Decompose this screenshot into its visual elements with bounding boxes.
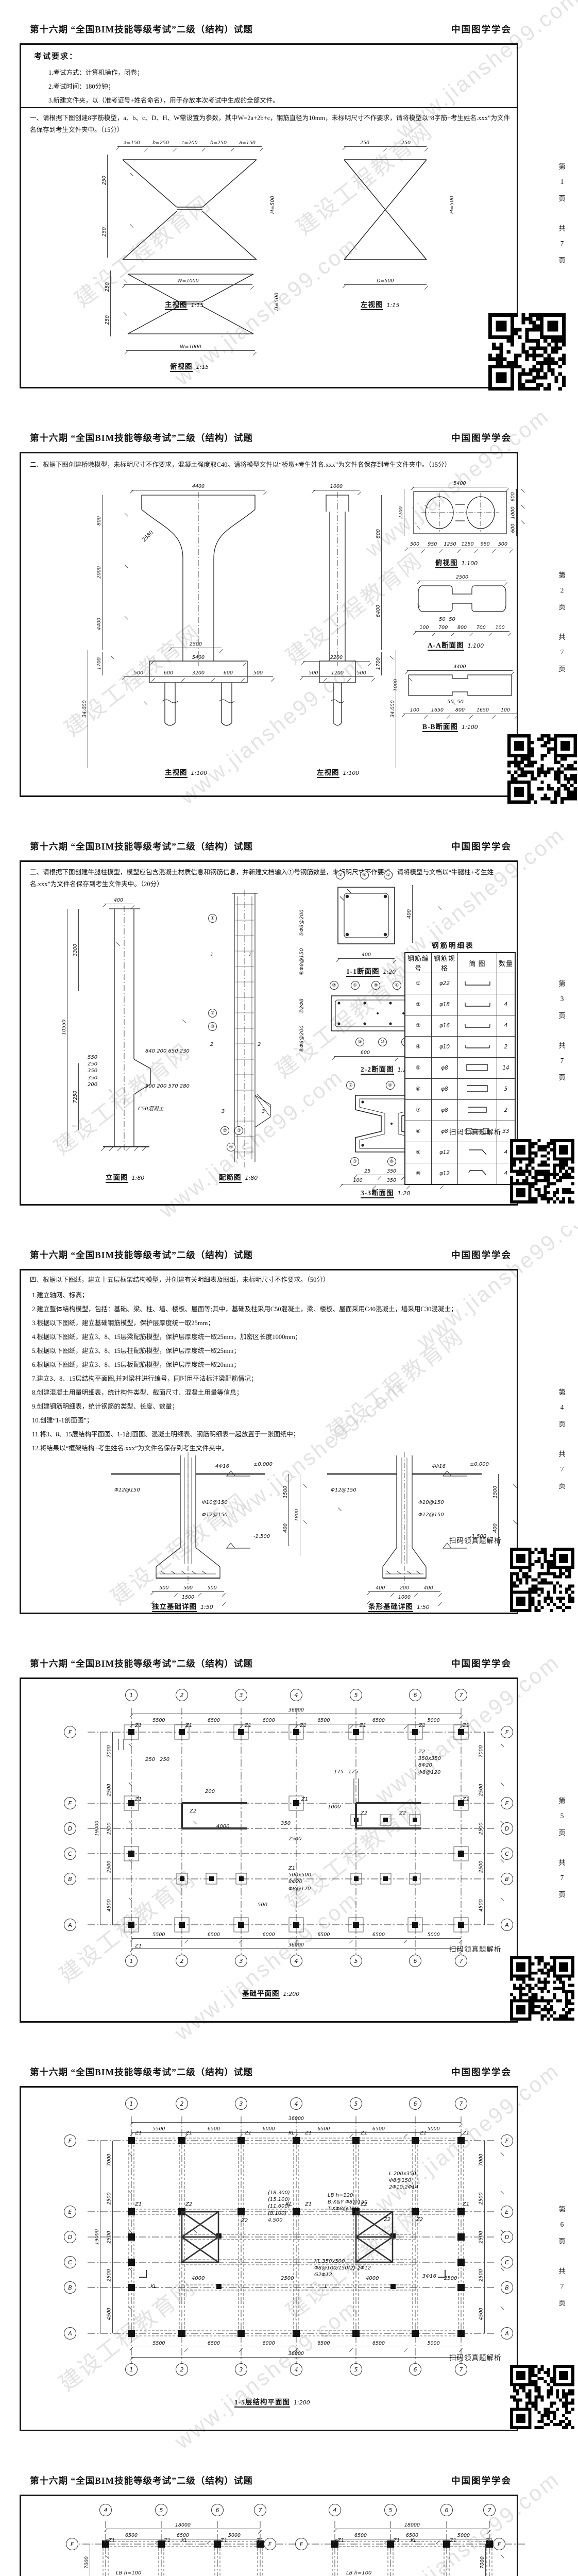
figure-section-bb (406, 672, 514, 698)
figure-caption: 1-1断面图1:20 (346, 965, 396, 976)
dim-depth: D=500 (274, 293, 280, 311)
list-item: 18000 (335, 2522, 489, 2529)
list-item: 共 (558, 2265, 566, 2276)
page-7: 建设工程教育网 www.jianshe99.com 建设工程教育网 www.ji… (0, 2451, 578, 2576)
dim-right-total: 1800 (294, 1474, 300, 1556)
task-item: 7.建立3、8、15层结构平面图,并对梁柱进行编号，同时用平法标注梁配筋情况； (32, 1372, 511, 1386)
qr-caption: 扫码领真题解析 (449, 2352, 502, 2362)
list-item: 1250 (459, 541, 477, 548)
list-item: 350 (88, 1067, 97, 1074)
list-item: 4500 (462, 1903, 501, 1909)
list-item: 400 (416, 1585, 440, 1591)
list-item: 1000 (368, 1595, 440, 1601)
column-label: Z1 (393, 2538, 400, 2544)
list-item: 500 (301, 670, 326, 676)
dim-chain-bottom: D=500 (344, 278, 427, 285)
column-label: Z1 (185, 2130, 192, 2136)
offset-dim: 250 (145, 1757, 155, 1762)
dim-chain-left: 250250 (104, 270, 111, 336)
callout-1: ① (208, 914, 217, 923)
page-total: 共7页 (556, 1040, 568, 1082)
figure-pier-front (111, 491, 286, 733)
list-item: 19000 (1, 1825, 193, 1832)
list-item: E (501, 2206, 513, 2218)
dim-top: 4400 (407, 664, 513, 671)
offset-dim: 1000 (328, 1804, 341, 1810)
org-name: 中国图学学会 (451, 23, 512, 36)
dim-right-chain: 1500400 (282, 1474, 289, 1546)
requirements-list: 1.考试方式：计算机操作，闭卷；2.考试时间：180分钟；3.新建文件夹，以（准… (48, 66, 279, 108)
dim-left-mid: 1700 (96, 652, 103, 675)
list-item: 500 (176, 1585, 200, 1591)
list-item: 950 (423, 541, 441, 548)
list-item: 400 (104, 897, 133, 904)
list-item: 1000 (313, 484, 360, 490)
list-item: 共 (558, 223, 566, 233)
org-name: 中国图学学会 (451, 2474, 512, 2487)
rebar-shape-open-stirrup (458, 1100, 497, 1121)
dim-chain-left: 250250 (101, 155, 108, 258)
list-item: 5 (350, 1689, 362, 1701)
column-label: Z1 (463, 2130, 469, 2136)
dim-bottom-chain: 5006003200600500 (124, 670, 273, 677)
offset-dim: 250 (160, 1757, 169, 1762)
offset-dim: 4000 (216, 1824, 229, 1829)
list-item: 500 (494, 541, 512, 548)
list-item: 2000 (73, 569, 125, 575)
list-item: 400 (380, 911, 438, 917)
column-label: Z1 (463, 1723, 469, 1728)
list-item: 4 (290, 2363, 302, 2376)
list-item: 8Φ20 (288, 1878, 311, 1885)
exam-title: 第十六期 “全国BIM技能等级考试”二级（结构）试题 (30, 1248, 253, 1261)
list-item: ② (330, 981, 338, 990)
list-item: 500 (243, 670, 273, 676)
list-item: F (264, 2538, 276, 2550)
list-item: F (295, 2538, 308, 2550)
list-item: ④ (393, 981, 401, 990)
list-item: (18.300) (268, 2190, 290, 2196)
list-item: 6500 (351, 1932, 406, 1938)
dim-right-chain: 70002500250025004500 (478, 1732, 485, 1925)
list-item: 19000 (1, 2234, 193, 2240)
list-item: 7 (455, 1955, 467, 1967)
requirements-title: 考试要求： (34, 50, 78, 61)
figure-caption: B-B断面图1:100 (422, 721, 478, 731)
figure-section-aa (417, 583, 507, 615)
list-item: A (64, 2327, 76, 2340)
rebar-label: Φ12@150 (114, 1487, 140, 1493)
list-item: 页 (558, 2297, 566, 2308)
column-label: Z2 (416, 2217, 423, 2223)
dim-right-chain: 8006400 (375, 495, 382, 650)
list-item: LB h=120 (328, 2192, 368, 2199)
dim-bottom-total: 36000 (131, 2351, 461, 2358)
list-item: 3200 (183, 670, 213, 676)
offset-dim: 200 (205, 1789, 215, 1794)
list-item: B (64, 1873, 76, 1885)
list-item: 1500 (477, 1489, 513, 1495)
list-item: 400 (477, 1525, 513, 1531)
offset-dim: 175 (334, 1769, 344, 1775)
list-item: F (64, 2134, 76, 2147)
column-label: Z1 (301, 1797, 308, 1802)
list-item: 600 (213, 670, 243, 676)
level-zero: ±0.000 (253, 1462, 273, 1467)
dim-footing: 5400 (152, 655, 245, 662)
list-item: 7000 (462, 2157, 501, 2163)
column-label: Z2 (384, 2217, 390, 2223)
list-item: G2Φ12 (314, 2272, 371, 2278)
list-item: c=200 (175, 140, 204, 146)
page-1: 建设工程教育网 www.jianshe99.com 建设工程教育网 www.ji… (0, 0, 578, 409)
dim-top: 4400 (131, 484, 265, 490)
figure-caption: 左视图1:100 (317, 767, 359, 777)
rebar-label: 4Φ16 (215, 1464, 229, 1469)
list-item: 2500 (462, 1825, 501, 1832)
page-3: 建设工程教育网 www.jianshe99.com 建设工程教育网 www.ji… (0, 817, 578, 1226)
list-item: 6500 (186, 1932, 242, 1938)
dim-bottom-chain: 550065006000650065005000 (131, 2341, 461, 2347)
list-item: 600 (154, 670, 183, 676)
list-item: 7 (560, 1057, 564, 1065)
page-number: 第1页 (556, 161, 568, 203)
figure-caption: 2-2断面图1:20 (361, 1063, 410, 1074)
list-item: 1000 (505, 510, 521, 516)
dim-h1: 3300 (72, 909, 79, 991)
dim-height: H=500 (270, 196, 276, 214)
dim-mids: 50 50 (447, 699, 464, 705)
column-label: Z1 (108, 2538, 115, 2544)
list-item: 250 (385, 140, 427, 146)
list-item: 34.000 (25, 706, 144, 712)
task-item: 8.创建混凝土用量明细表，统计构件类型、截面尺寸、混凝土用量等信息； (32, 1386, 511, 1400)
list-item: Φ8@120 (418, 1769, 441, 1776)
exam-title: 第十六期 “全国BIM技能等级考试”二级（结构）试题 (30, 2065, 253, 2078)
dim-height: H=500 (449, 196, 455, 214)
dim-right: 400 (406, 885, 413, 943)
dim-left-total: 19000 (94, 1732, 100, 1925)
list-item: 共 (558, 631, 566, 641)
offset-dim: 500 (258, 1902, 267, 1908)
list-item: B (64, 2281, 76, 2294)
exam-title: 第十六期 “全国BIM技能等级考试”二级（结构）试题 (30, 431, 253, 444)
list-item: 36000 (131, 2116, 461, 2122)
list-item: ⑨ (371, 981, 380, 990)
rebar-shape-bent-bar (458, 1142, 497, 1163)
list-item: 4 (99, 2504, 112, 2516)
beam-label: KL (181, 2538, 188, 2544)
figure-side-view (334, 150, 437, 269)
list-item: 2500 (462, 2195, 501, 2201)
section-mark-1: 1 (248, 952, 251, 958)
list-item: 5000 (438, 2533, 489, 2539)
dim-top-total: 36000 (131, 1707, 461, 1714)
col-header: 钢筋编号 (405, 953, 431, 973)
figure-strip-footing (319, 1452, 489, 1591)
list-item: E (64, 2206, 76, 2218)
list-item: 5 (384, 2504, 397, 2516)
qr-code (510, 1139, 574, 1204)
qr-caption: 扫码领真题解析 (449, 1943, 502, 1954)
list-item: 1 (125, 1689, 138, 1701)
list-item: Z1 (288, 1865, 311, 1872)
list-item: ⑤Φ8@200 (299, 909, 305, 936)
task-item: 11.将3、8、15层结构平面图、1-1剖面图、混凝土明细表、钢筋明细表一起放置… (32, 1428, 511, 1442)
dim-right-chain: 70002500250025004500 (478, 2141, 485, 2333)
list-item: 250 (78, 177, 130, 183)
figure-caption: 主视图1:15 (165, 299, 203, 309)
list-item: 1700 (87, 660, 111, 667)
rebar-shape-stirrup (458, 1058, 497, 1079)
list-item: 7 (455, 1689, 467, 1701)
list-item: 800 (339, 531, 417, 537)
floor-plan-drawing (77, 2107, 505, 2375)
list-item: E (501, 1797, 513, 1809)
list-item: 2500 (418, 574, 506, 581)
list-item: 100 (403, 707, 426, 714)
question-4: 四、根据以下图纸，建立十五层框架结构模型，并创建有关明细表及图纸，未标明尺寸不作… (30, 1274, 514, 1286)
bend-dims-10: 500 200 570 280 (145, 1083, 190, 1090)
list-item: F (501, 1726, 513, 1738)
list-item: 2500 (462, 1787, 501, 1793)
dim-top-total: 18000 (106, 2522, 260, 2529)
list-item: 页 (558, 663, 566, 673)
list-item: 5 (350, 2097, 362, 2110)
list-item: 共 (558, 1448, 566, 1459)
dim-top: 2500 (418, 574, 506, 581)
beam-label: KL (288, 2130, 295, 2136)
dim-cap: 2500 (170, 641, 222, 648)
list-item: 5000 (209, 2533, 260, 2539)
slab-note: LB h=120B:X&Y Φ8@150T:XΦ8@200 (328, 2192, 368, 2213)
col-header: 简 图 (458, 953, 497, 973)
column-label: Z1 (300, 1723, 307, 1728)
callout-2-3: ②③ (220, 1126, 243, 1135)
list-item: F (64, 1726, 76, 1738)
rebar-shape-open-stirrup (458, 1079, 497, 1100)
rebar-extra: 3Φ16 (422, 2274, 436, 2279)
exam-title: 第十六期 “全国BIM技能等级考试”二级（结构）试题 (30, 2474, 253, 2487)
list-item: 5500 (131, 2341, 186, 2347)
column-label: Z2 (241, 2218, 248, 2224)
dim-left: 1000 (393, 672, 399, 698)
list-item: L 200x350 (389, 2171, 418, 2177)
column-label: Z1 (135, 2130, 142, 2136)
list-item: 800 (453, 625, 472, 631)
list-item: C (501, 2256, 513, 2268)
list-item: 800 (449, 707, 471, 714)
list-item: b=250 (204, 140, 233, 146)
rebar-label: 4Φ16 (432, 1464, 446, 1469)
list-item: 5000 (406, 2341, 461, 2347)
page-number: 第5页 (556, 1795, 568, 1837)
column-label: Z2 (399, 1810, 406, 1816)
qr-code (510, 1956, 574, 2021)
section11-callouts: ①⑤① (336, 871, 393, 879)
column-label: Z2 (185, 2201, 192, 2207)
org-name: 中国图学学会 (451, 2065, 512, 2078)
list-item: (15.100) (268, 2196, 290, 2203)
list-item: 10550 (0, 1024, 182, 1030)
task-item: 12.将结果以“框架结构+考生姓名.xxx”为文件名保存到考生文件夹中。 (32, 1442, 511, 1455)
list-item: 4 (290, 1689, 302, 1701)
list-item: 2500 (462, 1864, 501, 1870)
list-item: KL 350x500 (314, 2258, 371, 2265)
figure-caption: 主视图1:100 (165, 767, 207, 777)
dim-right-chain: 6001000600 (510, 489, 517, 536)
list-item: 7 (560, 2282, 564, 2291)
list-item: 页 (558, 1072, 566, 1082)
rebar-notes: ⑤Φ8@200⑥Φ8@150⑦2Φ8⑧Φ8@200 (288, 920, 315, 1042)
table-title: 钢筋明细表 (432, 940, 474, 950)
column-label: Z1 (185, 1723, 192, 1728)
list-item: ③ (350, 1157, 359, 1166)
list-item: 7 (455, 2097, 467, 2110)
figure-caption: 左视图1:15 (361, 299, 399, 309)
list-item: 700 (471, 625, 490, 631)
annotation-z1: Z1500x5008Φ20Φ8@120 (288, 1865, 311, 1892)
list-item: 6500 (186, 2126, 242, 2132)
page-5: 建设工程教育网 www.jianshe99.com 建设工程教育网 www.ji… (0, 1634, 578, 2043)
level-zero: ±0.000 (470, 1462, 489, 1467)
list-item: ⑧ (387, 1157, 396, 1166)
list-item: 6500 (186, 2341, 242, 2347)
list-item: 1 (125, 2363, 138, 2376)
list-item: 页 (558, 255, 566, 265)
table-row: ②φ184 (405, 994, 515, 1015)
callout-9: ⑨ (208, 1009, 217, 1018)
list-item: F (493, 2538, 505, 2550)
dim-width: 2200 (303, 655, 370, 662)
list-item: ② (346, 1081, 355, 1090)
figure-caption: 3-3断面图1:20 (361, 1187, 410, 1197)
list-item: 600 (505, 526, 521, 532)
list-item: 1800 (256, 1512, 338, 1518)
column-label: Z1 (419, 1723, 426, 1728)
dim-top: 5400 (412, 481, 507, 487)
beam-kl-note: KL 350x500Φ8@100/150(2) 2Φ12G2Φ12 (314, 2258, 371, 2279)
dim-left-chain: 80020004400 (96, 495, 103, 650)
list-item: 7000 (462, 1748, 501, 1754)
qr-code (510, 1548, 574, 1612)
list-item: 2Φ10;2Φ14 (389, 2184, 418, 2191)
rebar-label: Φ10@150 (418, 1500, 444, 1505)
list-item: F (501, 2134, 513, 2147)
offset-dim: 175 (348, 1769, 358, 1775)
list-item: 5000 (406, 1718, 461, 1724)
list-item: 5500 (131, 1932, 186, 1938)
list-item: 200 (393, 1585, 417, 1591)
core-dim: 4000 (366, 2276, 379, 2281)
callout-4: ④ (227, 1143, 236, 1151)
figure-caption: 立面图1:80 (106, 1172, 144, 1182)
column-label: Z1 (420, 2130, 427, 2136)
figure-front-view (112, 150, 267, 269)
page-total: 共7页 (556, 631, 568, 673)
list-item: 350x350 (418, 1755, 441, 1762)
task-item: 10.创建“1-1剖面图”； (32, 1414, 511, 1428)
dim-right-total: 34.000 (389, 650, 396, 768)
section-mark-3: 3 (262, 1109, 265, 1114)
list-item: ⑤ (360, 871, 369, 879)
list-item: 1250 (441, 541, 458, 548)
exam-title: 第十六期 “全国BIM技能等级考试”二级（结构）试题 (30, 23, 253, 36)
offset-dim: 350 (281, 1821, 291, 1826)
question-3: 三、请根据下图创建牛腿柱模型，模型应包含混凝土材质信息和钢筋信息，并新建文档输入… (30, 867, 514, 890)
figure-isolated-footing (103, 1452, 273, 1591)
list-item: 2500 (462, 2234, 501, 2240)
page-number: 第3页 (556, 978, 568, 1020)
table-row: ⑨φ124 (405, 1142, 515, 1163)
page-number: 第4页 (556, 1386, 568, 1429)
task-item: 4.根据以下图纸，建立3、8、15层梁配筋模型，保护层厚度统一取25mm，加密区… (32, 1330, 511, 1344)
list-item: A (501, 2327, 513, 2340)
list-item: Z2 (418, 1749, 441, 1755)
rebar-schedule-table: 钢筋编号 钢筋规格 简 图 数量 ①φ22 ②φ184 ③φ164 ④φ102 … (404, 952, 516, 1185)
column-label: Z1 (257, 2538, 263, 2544)
dim-bottom-chain: 5001200500 (301, 670, 373, 677)
list-item: (11.600) (268, 2203, 290, 2210)
list-item: 500 (124, 670, 154, 676)
page-number: 第6页 (556, 2204, 568, 2246)
list-item: LB h=100 (116, 2570, 156, 2576)
col-header: 数量 (497, 953, 515, 973)
list-item: 6000 (241, 1932, 296, 1938)
plan-title: 1-5层结构平面图1:200 (234, 2396, 310, 2406)
list-item: 7250 (42, 1094, 109, 1100)
list-item: 6 (440, 2504, 453, 2516)
list-item: 6500 (296, 1932, 351, 1938)
list-item: 700 (434, 625, 453, 631)
figure-caption: 俯视图1:100 (435, 557, 478, 567)
list-item: 2500 (170, 641, 222, 648)
column-label: Z1 (463, 2201, 469, 2207)
list-item: 1 (125, 2097, 138, 2110)
list-item: 共 (558, 1040, 566, 1050)
core-dim: 4000 (192, 2276, 205, 2281)
list-item: 3 (235, 1689, 247, 1701)
list-item: 500 (152, 1585, 176, 1591)
list-item: 1200 (326, 670, 350, 676)
table-row: ③φ164 (405, 1015, 515, 1037)
list-item: 1500 (152, 1595, 224, 1601)
rebar-shape-bent-bar (458, 1163, 497, 1184)
beam-label: KL (411, 2538, 417, 2544)
list-item: C (64, 2256, 76, 2268)
list-item: ⑦2Φ8 (299, 987, 305, 1013)
list-item: 6 (211, 2504, 224, 2516)
table-row: ①φ22 (405, 973, 515, 994)
dim-chain-top: 250250 (344, 140, 427, 147)
column-label: Z1 (135, 1797, 142, 1802)
list-item: Φ8@120 (288, 1886, 311, 1892)
dim-left-total: 19000 (94, 2141, 100, 2333)
column-label: Z1 (361, 2130, 367, 2136)
list-item: ③ (355, 1038, 364, 1046)
list-item: 7000 (464, 2560, 501, 2566)
list-item: 500 (406, 541, 423, 548)
figure-caption: A-A断面图1:100 (428, 639, 484, 650)
list-item: F (66, 2538, 78, 2550)
list-item: 页 (558, 1889, 566, 1899)
list-item: 2200 (303, 655, 370, 661)
list-item: 36000 (131, 1942, 461, 1948)
qr-code (488, 313, 566, 391)
list-item: 400 (338, 952, 395, 958)
list-item: LB h=100 (346, 2570, 386, 2576)
list-item: 5 (350, 1955, 362, 1967)
